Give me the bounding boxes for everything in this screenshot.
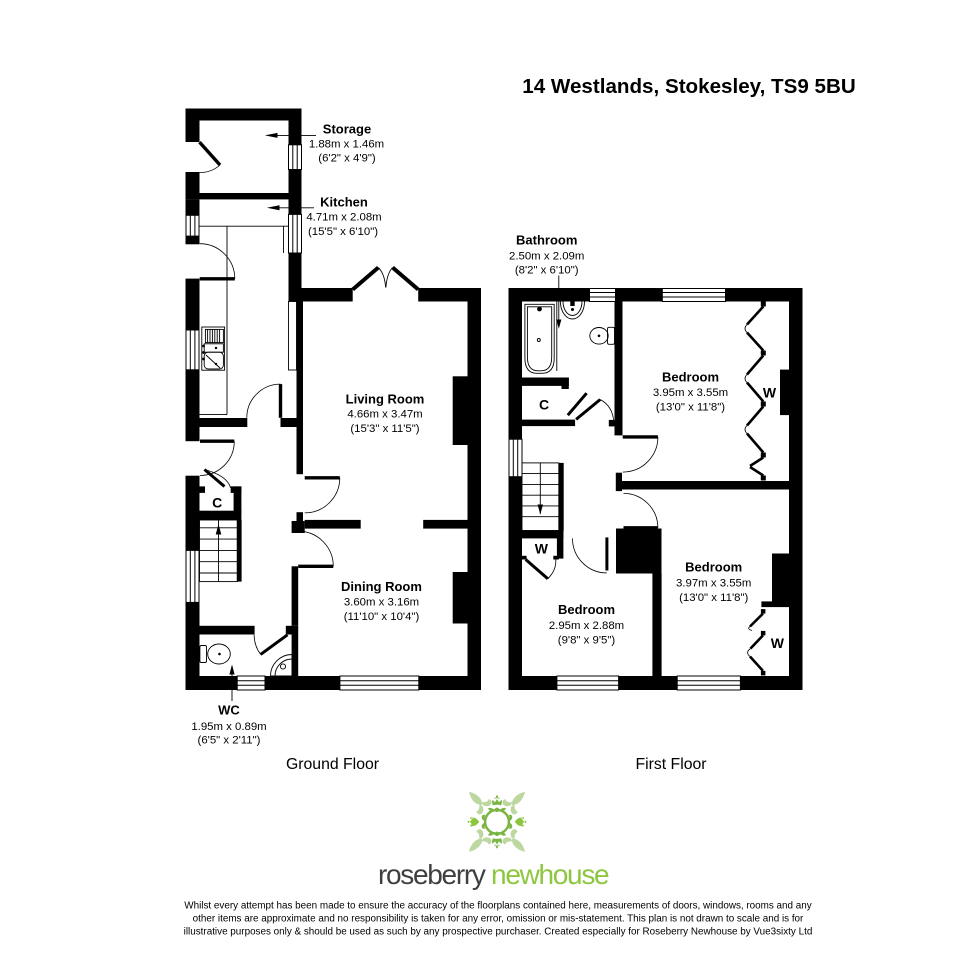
svg-text:Bathroom: Bathroom [516, 233, 577, 248]
svg-text:W: W [771, 635, 785, 651]
svg-text:4.66m x 3.47m: 4.66m x 3.47m [347, 409, 422, 421]
svg-text:1.88m x 1.46m: 1.88m x 1.46m [309, 138, 384, 150]
svg-text:Dining Room: Dining Room [341, 579, 422, 594]
svg-text:1.95m x 0.89m: 1.95m x 0.89m [191, 721, 266, 733]
svg-text:(13'0" x 11'8"): (13'0" x 11'8") [679, 592, 748, 604]
svg-text:(6'2" x 4'9"): (6'2" x 4'9") [318, 153, 376, 165]
svg-text:C: C [212, 495, 222, 511]
svg-text:W: W [535, 541, 549, 557]
svg-text:(15'5" x 6'10"): (15'5" x 6'10") [308, 226, 378, 238]
svg-text:2.50m x 2.09m: 2.50m x 2.09m [509, 251, 584, 263]
svg-text:C: C [539, 397, 549, 413]
svg-text:3.95m x 3.55m: 3.95m x 3.55m [653, 387, 728, 399]
svg-text:(15'3" x 11'5"): (15'3" x 11'5") [350, 423, 419, 435]
svg-text:(8'2" x 6'10"): (8'2" x 6'10") [515, 265, 579, 277]
svg-text:roseberry newhouse: roseberry newhouse [378, 859, 609, 890]
svg-text:14 Westlands, Stokesley, TS9 5: 14 Westlands, Stokesley, TS9 5BU [522, 75, 855, 98]
svg-text:Storage: Storage [323, 122, 371, 137]
svg-text:W: W [763, 385, 777, 401]
svg-text:2.95m x 2.88m: 2.95m x 2.88m [549, 620, 624, 632]
svg-text:4.71m x 2.08m: 4.71m x 2.08m [306, 212, 381, 224]
svg-text:illustrative purposes only & s: illustrative purposes only & should be u… [184, 926, 813, 937]
svg-text:3.97m x 3.55m: 3.97m x 3.55m [676, 578, 751, 590]
svg-text:3.60m x 3.16m: 3.60m x 3.16m [344, 597, 419, 609]
svg-text:Kitchen: Kitchen [320, 195, 368, 210]
svg-text:Whilst every attempt has been: Whilst every attempt has been made to en… [184, 901, 811, 912]
svg-text:Bedroom: Bedroom [662, 370, 719, 385]
svg-text:WC: WC [218, 703, 240, 718]
svg-text:Bedroom: Bedroom [685, 560, 742, 575]
svg-text:(11'10" x 10'4"): (11'10" x 10'4") [344, 611, 420, 623]
svg-text:other items are approximate an: other items are approximate and no respo… [193, 914, 804, 925]
svg-text:First Floor: First Floor [635, 756, 706, 773]
svg-text:Ground Floor: Ground Floor [286, 756, 379, 773]
svg-text:(13'0" x 11'8"): (13'0" x 11'8") [656, 402, 725, 414]
svg-text:(6'5" x 2'11"): (6'5" x 2'11") [198, 735, 261, 747]
svg-text:(9'8" x 9'5"): (9'8" x 9'5") [558, 634, 616, 646]
svg-text:Living Room: Living Room [346, 392, 425, 407]
svg-text:Bedroom: Bedroom [558, 602, 615, 617]
